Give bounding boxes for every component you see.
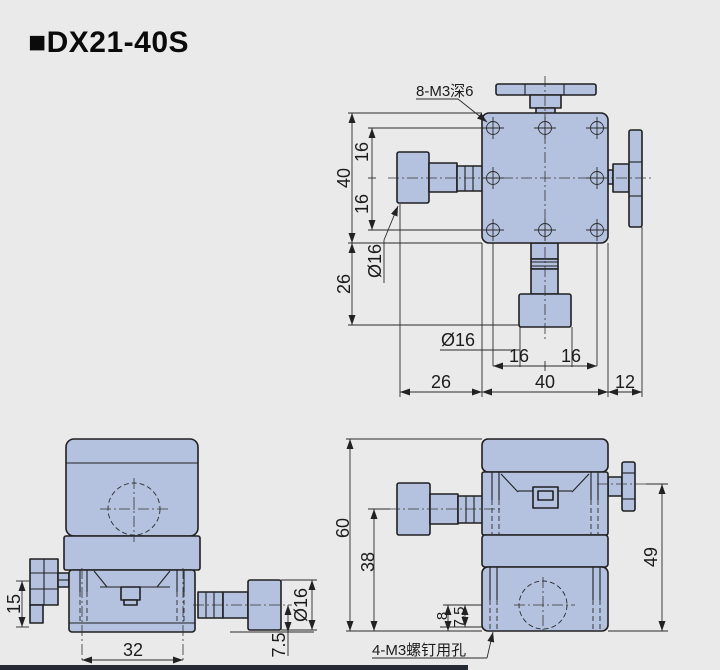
dim-side-overall-height: 60 [333, 518, 353, 538]
dim-left-extent: 26 [431, 372, 451, 392]
dim-hole-pitch-right: 16 [561, 346, 581, 366]
side-lower-block [482, 567, 608, 631]
side-view: 60 38 49 8 7.5 4-M3螺钉用孔 [333, 439, 668, 659]
right-knob [608, 130, 642, 227]
dim-hole-pitch-lower: 16 [352, 194, 372, 214]
dim-hole-pitch-left: 16 [509, 346, 529, 366]
side-upper-block [482, 439, 608, 472]
drawing-page: ■DX21-40S [0, 0, 720, 670]
bottom-edge-bar [0, 665, 468, 670]
front-left-knob [30, 559, 69, 623]
dim-y-axis-height: 49 [641, 547, 661, 567]
dim-right-extent: 12 [615, 372, 635, 392]
dim-knob-height: 15 [4, 594, 24, 614]
dim-hole-pitch-upper: 16 [352, 142, 372, 162]
top-knob [496, 84, 596, 114]
technical-drawing: 8-M3深6 40 16 16 Ø16 26 Ø16 16 16 26 40 1… [0, 0, 720, 670]
dim-axis-offset: 7.5 [269, 632, 289, 657]
front-upper-block [66, 439, 198, 536]
dim-hole-offset-a: 8 [434, 612, 451, 620]
hole-callout-label: 8-M3深6 [416, 83, 474, 100]
side-mid-block [482, 535, 608, 567]
dim-base-width: 32 [123, 640, 143, 660]
dim-overall-width: 40 [535, 372, 555, 392]
dim-hole-offset-b: 7.5 [451, 607, 468, 628]
left-micrometer-knob [397, 152, 483, 203]
dim-knob-left-dia: Ø16 [365, 244, 385, 278]
dim-x-axis-height: 38 [358, 552, 378, 572]
top-view: 8-M3深6 40 16 16 Ø16 26 Ø16 16 16 26 40 1… [334, 76, 654, 397]
dim-overall-height: 40 [334, 168, 354, 188]
dim-knob-bottom-dia: Ø16 [441, 330, 475, 350]
dim-knob-dia: Ø16 [291, 588, 311, 622]
dim-lower-extent: 26 [334, 274, 354, 294]
screw-callout-label: 4-M3螺钉用孔 [372, 642, 466, 659]
front-mid-block [64, 536, 200, 570]
front-view: 15 32 7.5 Ø16 [4, 439, 317, 663]
